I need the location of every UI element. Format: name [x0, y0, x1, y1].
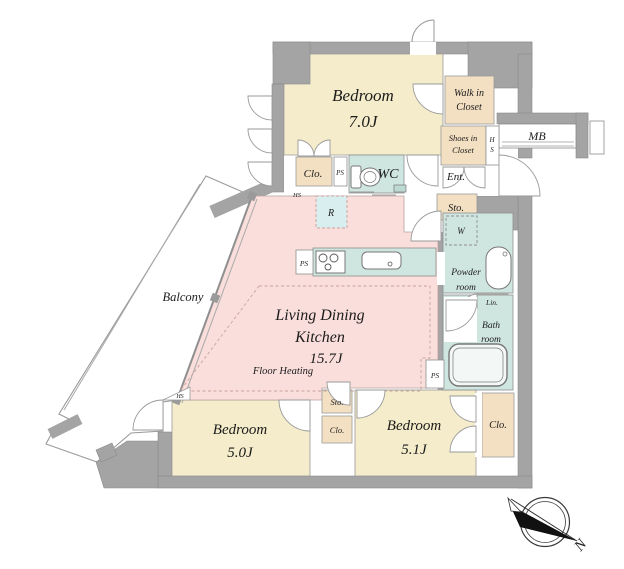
balcony-label: Balcony [163, 290, 204, 304]
wall-topleft-block [273, 42, 310, 84]
bath-label-1: Bath [482, 321, 500, 331]
ps-kitchen-label: PS [299, 259, 309, 268]
hs-vertical-h: H [488, 136, 495, 144]
bedroom3-size: 5.1J [401, 442, 428, 458]
ent-label: Ent. [446, 171, 465, 183]
bedroom3-name: Bedroom [387, 418, 442, 434]
pipe-box-right [590, 121, 604, 154]
sto-entrance-label: Sto. [448, 203, 464, 214]
window-bedroom1-left-3 [248, 162, 272, 186]
wic-label-2: Closet [456, 102, 482, 113]
ps-wc-label: PS [335, 169, 344, 177]
top-window-arc [412, 20, 434, 42]
hs-bedroom2-label: HS [175, 394, 183, 400]
fridge-label: R [327, 208, 334, 219]
wall-left-bedroom1 [272, 84, 284, 192]
kitchen-sink [362, 252, 401, 269]
bathtub [449, 344, 507, 386]
powder-vanity [486, 247, 511, 289]
sto-hall-label: Sto. [331, 397, 344, 407]
clo-hall-label: Clo. [330, 425, 344, 435]
wall-mb-right [576, 113, 588, 158]
bedroom2-size: 5.0J [227, 445, 254, 461]
mb-label: MB [527, 129, 546, 143]
ldk-size: 15.7J [310, 351, 344, 367]
bedroom1-name: Bedroom [332, 86, 394, 105]
wc-cabinet [394, 185, 406, 192]
bedroom2-name: Bedroom [213, 422, 268, 438]
sic-label-1: Shoes in [449, 133, 478, 143]
sic-label-2: Closet [452, 145, 474, 155]
bedroom1-size: 7.0J [349, 112, 379, 131]
wall-mb-top [497, 113, 588, 124]
lin-label: Lin. [485, 298, 498, 307]
ps-bath-label: PS [430, 371, 440, 380]
wic-label-1: Walk in [454, 88, 484, 99]
ldk-label-1: Living Dining [274, 307, 364, 324]
wall-right-lower [518, 196, 532, 488]
kitchen-stove [316, 251, 345, 273]
window-bedroom1-left-1 [248, 96, 272, 120]
wall-left-bedroom2 [158, 432, 172, 476]
compass-needle-open [508, 498, 521, 512]
ldk-label-2: Kitchen [294, 329, 345, 346]
wc-label: WC [378, 167, 400, 182]
powder-door-gap [437, 252, 445, 285]
floor-plan-svg: Bedroom 7.0J Walk in Closet Shoes in Clo… [0, 0, 624, 569]
room-walk-in-closet [445, 76, 494, 124]
top-window-gap [410, 42, 436, 55]
bath-label-2: room [481, 335, 501, 345]
clo-bedroom3-label: Clo. [489, 420, 507, 431]
compass: N [508, 498, 591, 556]
hs-wc-label: HS [292, 192, 302, 199]
floor-plan-page: Bedroom 7.0J Walk in Closet Shoes in Clo… [0, 0, 624, 569]
powder-label-1: Powder [450, 268, 481, 278]
floor-heating-label: Floor Heating [252, 366, 313, 377]
wall-bottom [158, 476, 532, 488]
window-bedroom1-left-2 [248, 129, 272, 153]
clo-bedroom1-label: Clo. [304, 168, 323, 180]
powder-label-2: room [456, 283, 476, 293]
door-entrance [499, 155, 540, 196]
hs-vertical-s: S [490, 146, 494, 154]
